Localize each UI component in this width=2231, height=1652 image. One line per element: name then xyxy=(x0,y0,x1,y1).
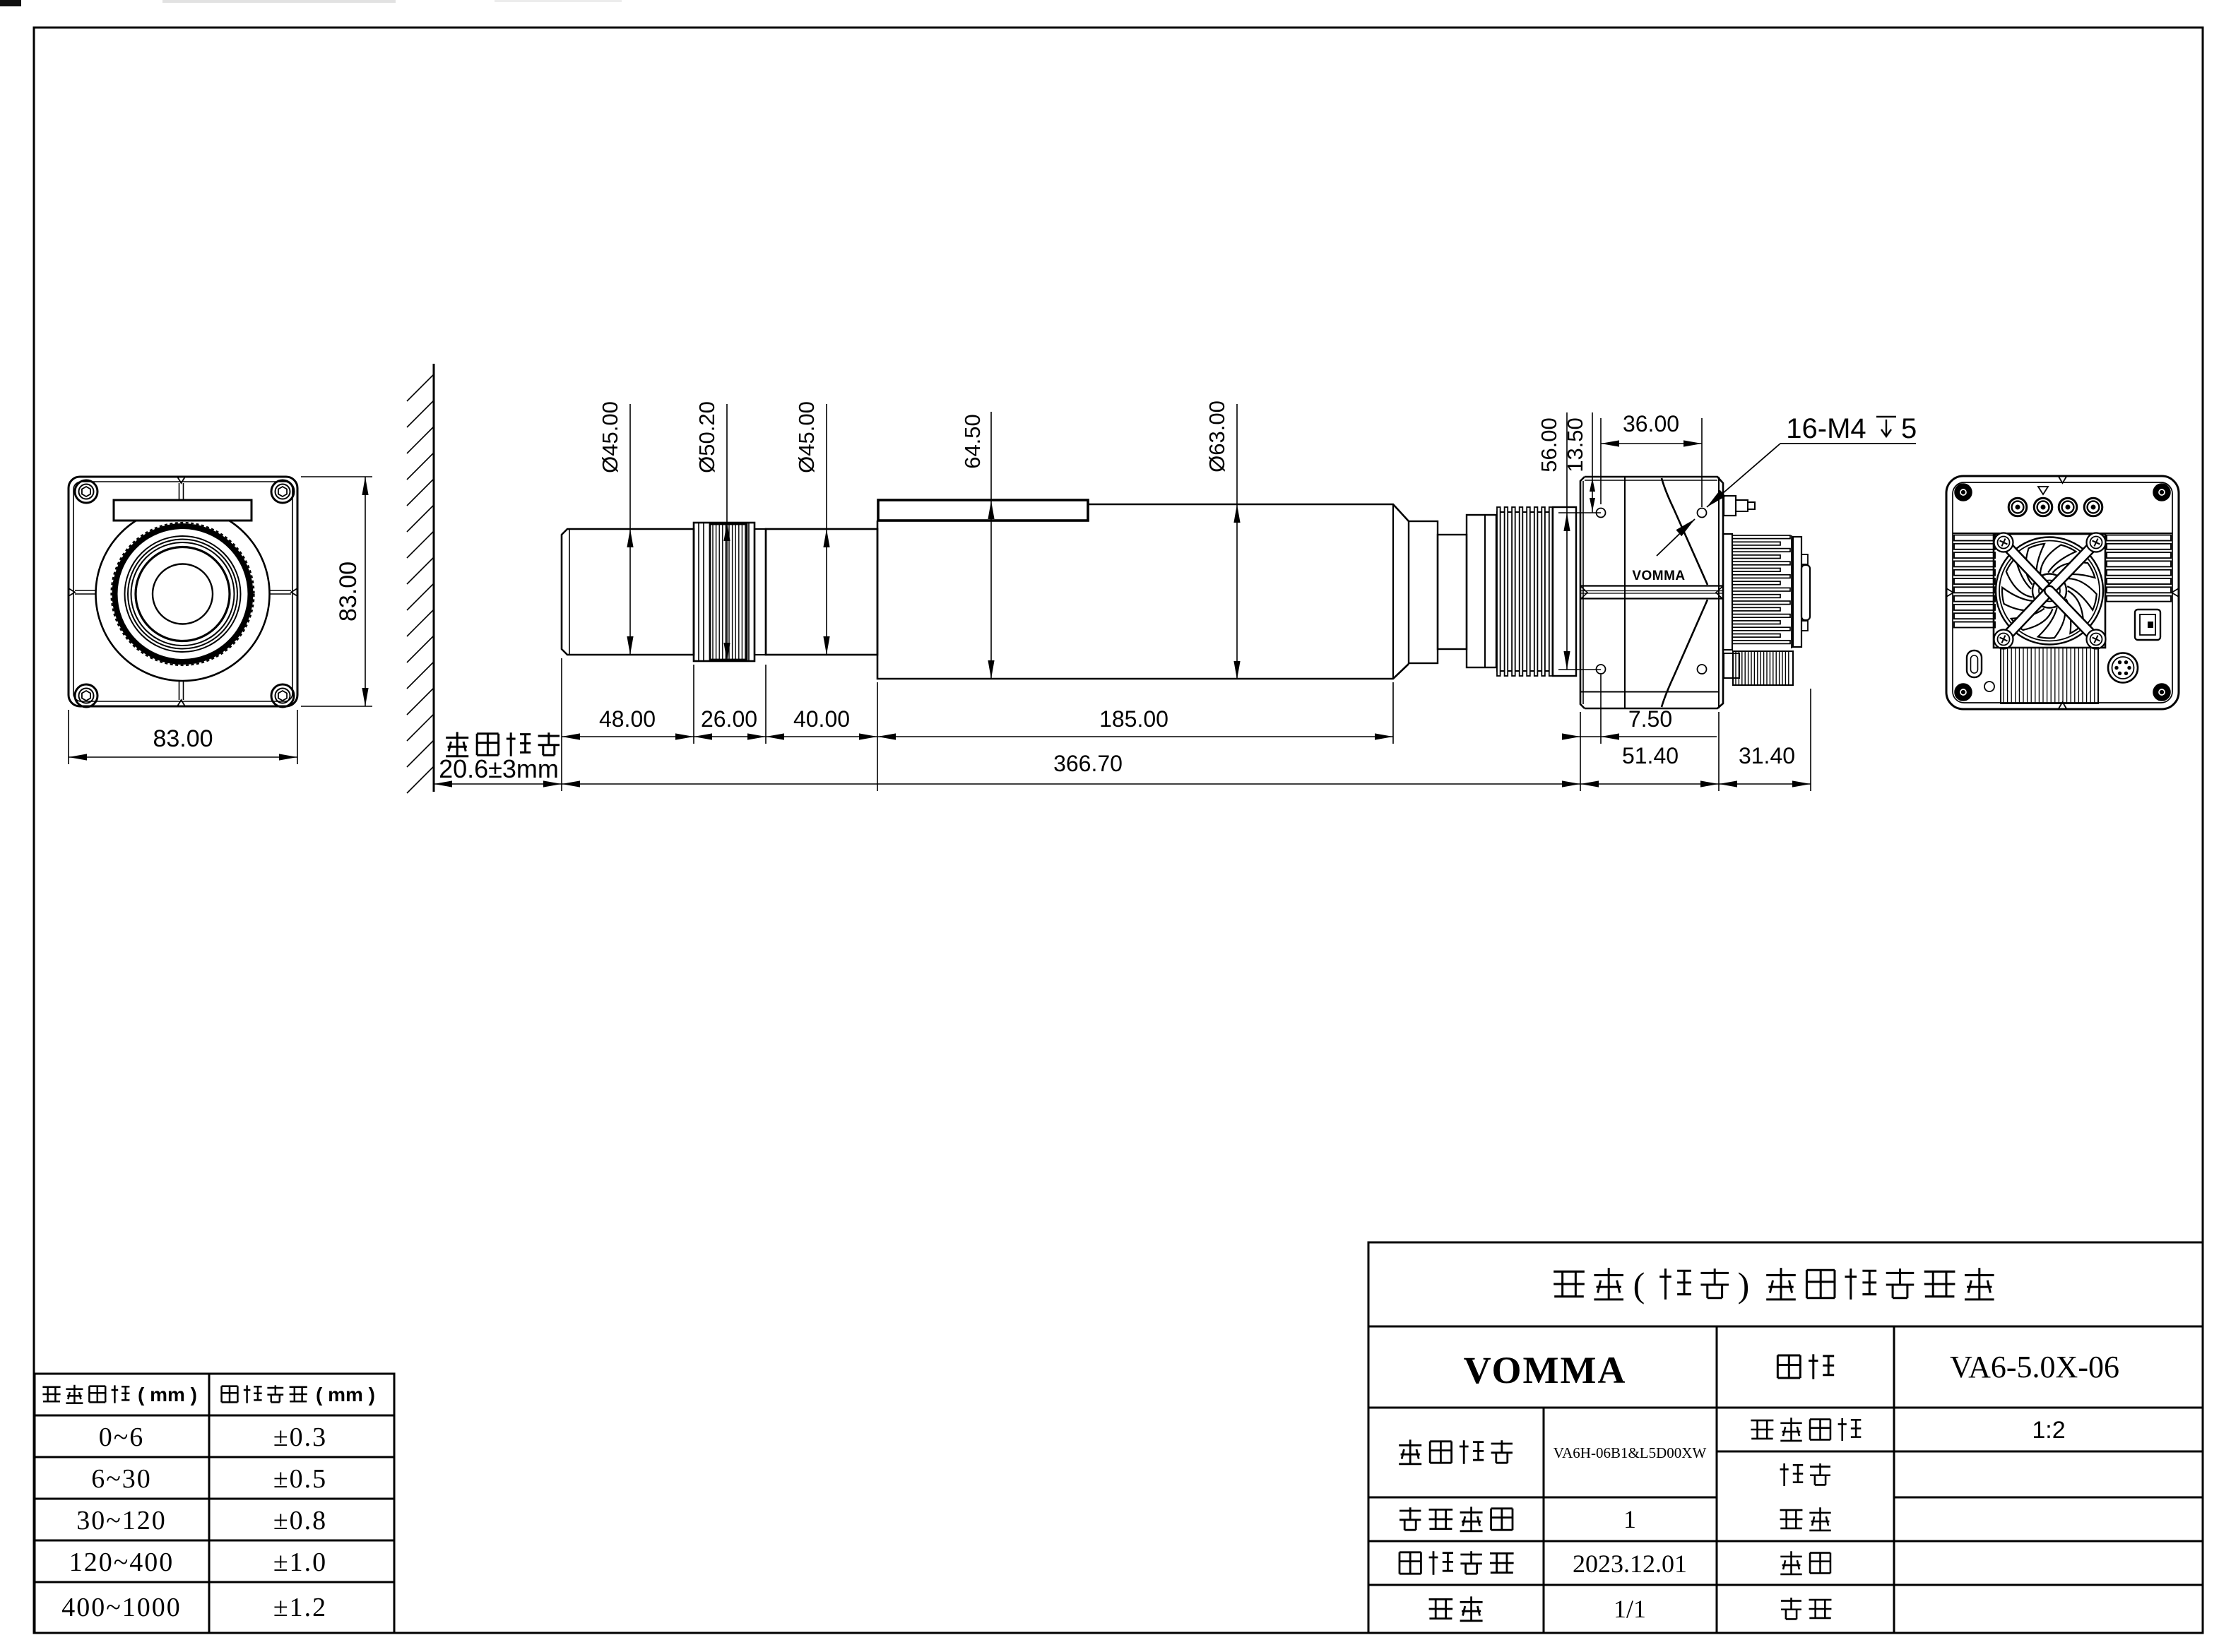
svg-text:1: 1 xyxy=(1623,1505,1636,1533)
svg-text:( mm ): ( mm ) xyxy=(138,1384,197,1406)
svg-text:16-M4: 16-M4 xyxy=(1786,413,1866,444)
svg-text:±1.2: ±1.2 xyxy=(273,1593,327,1622)
svg-text:56.00: 56.00 xyxy=(1537,417,1561,473)
svg-text:VA6H-06B1&L5D00XW: VA6H-06B1&L5D00XW xyxy=(1554,1444,1707,1461)
svg-text:): ) xyxy=(1738,1265,1750,1305)
svg-text:185.00: 185.00 xyxy=(1099,706,1168,732)
svg-text:1/1: 1/1 xyxy=(1614,1595,1646,1623)
svg-text:Ø63.00: Ø63.00 xyxy=(1205,400,1229,473)
svg-text:(: ( xyxy=(1633,1265,1645,1305)
svg-text:Ø45.00: Ø45.00 xyxy=(598,401,622,473)
svg-text:2023.12.01: 2023.12.01 xyxy=(1573,1550,1687,1578)
svg-text:VOMMA: VOMMA xyxy=(1632,569,1685,583)
svg-text:1:2: 1:2 xyxy=(2032,1417,2065,1444)
svg-text:7.50: 7.50 xyxy=(1628,706,1672,732)
svg-text:48.00: 48.00 xyxy=(599,706,656,732)
svg-text:366.70: 366.70 xyxy=(1053,751,1123,776)
svg-text:30~120: 30~120 xyxy=(76,1506,167,1535)
svg-text:31.40: 31.40 xyxy=(1739,743,1795,768)
svg-text:0~6: 0~6 xyxy=(99,1422,145,1452)
svg-text:±0.5: ±0.5 xyxy=(273,1464,327,1494)
svg-text:64.50: 64.50 xyxy=(960,414,985,469)
svg-text:VA6-5.0X-06: VA6-5.0X-06 xyxy=(1950,1350,2119,1384)
svg-text:26.00: 26.00 xyxy=(701,706,757,732)
svg-text:VOMMA: VOMMA xyxy=(1464,1349,1627,1391)
svg-text:120~400: 120~400 xyxy=(69,1547,174,1577)
svg-text:400~1000: 400~1000 xyxy=(61,1593,182,1622)
svg-text:Ø50.20: Ø50.20 xyxy=(694,401,719,473)
svg-text:Ø45.00: Ø45.00 xyxy=(794,401,819,473)
svg-text:6~30: 6~30 xyxy=(91,1464,152,1494)
svg-text:±0.8: ±0.8 xyxy=(273,1506,327,1535)
svg-text:36.00: 36.00 xyxy=(1623,411,1679,436)
svg-text:83.00: 83.00 xyxy=(335,561,362,622)
svg-text:±1.0: ±1.0 xyxy=(273,1547,327,1577)
svg-text:5: 5 xyxy=(1901,413,1917,444)
svg-text:20.6±3mm: 20.6±3mm xyxy=(439,754,559,783)
svg-text:83.00: 83.00 xyxy=(153,725,213,752)
svg-text:( mm ): ( mm ) xyxy=(316,1384,375,1406)
svg-text:51.40: 51.40 xyxy=(1622,743,1679,768)
svg-text:40.00: 40.00 xyxy=(793,706,850,732)
svg-text:±0.3: ±0.3 xyxy=(273,1422,327,1452)
